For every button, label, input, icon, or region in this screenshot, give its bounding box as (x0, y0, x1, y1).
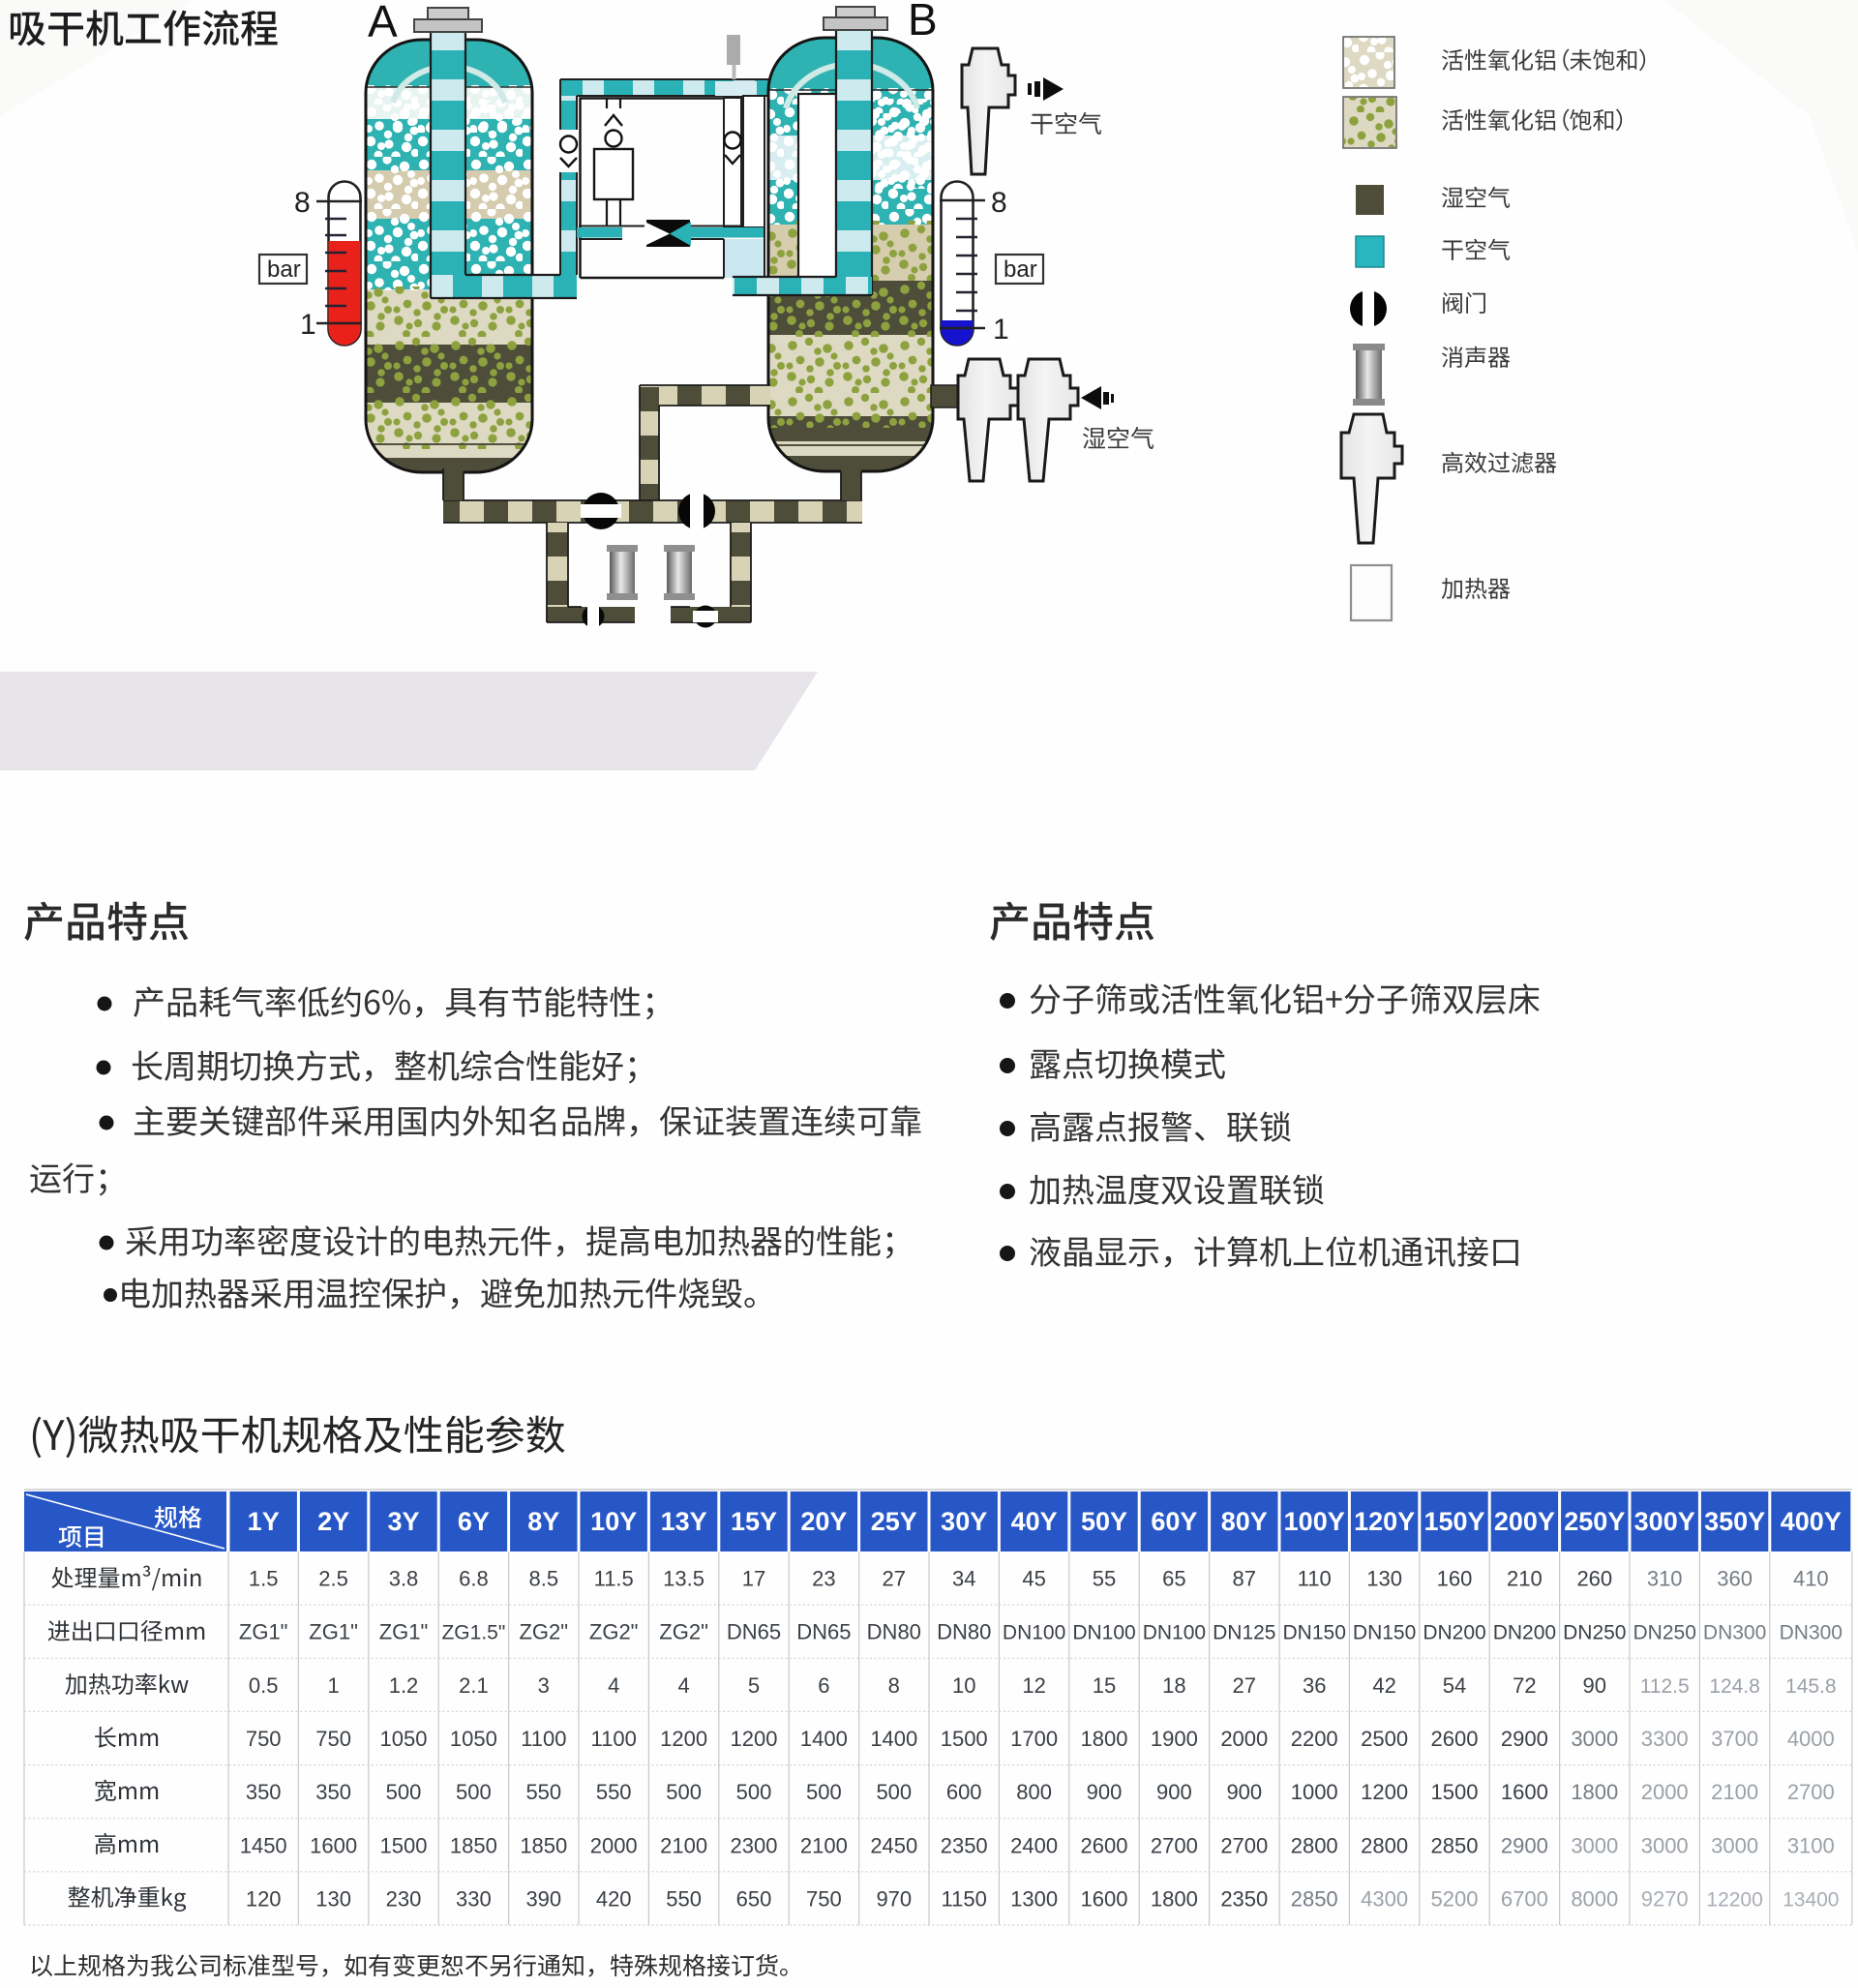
svg-text:2900: 2900 (1501, 1833, 1548, 1857)
svg-text:1600: 1600 (1501, 1780, 1548, 1804)
svg-text:300Y: 300Y (1634, 1507, 1695, 1536)
svg-text:2700: 2700 (1151, 1833, 1198, 1857)
svg-text:1050: 1050 (380, 1727, 428, 1751)
svg-text:10Y: 10Y (590, 1507, 637, 1536)
svg-text:36: 36 (1303, 1673, 1326, 1698)
svg-text:2850: 2850 (1431, 1833, 1479, 1857)
svg-text:2700: 2700 (1220, 1833, 1268, 1857)
svg-text:8000: 8000 (1571, 1886, 1618, 1911)
svg-text:DN250: DN250 (1563, 1622, 1626, 1644)
svg-text:1400: 1400 (800, 1727, 848, 1751)
svg-text:60Y: 60Y (1151, 1507, 1197, 1536)
svg-text:1600: 1600 (1081, 1886, 1128, 1911)
svg-text:1400: 1400 (870, 1727, 917, 1751)
svg-text:1500: 1500 (1431, 1780, 1479, 1804)
svg-text:1: 1 (993, 314, 1009, 346)
svg-text:2850: 2850 (1291, 1886, 1338, 1911)
svg-text:2100: 2100 (660, 1833, 707, 1857)
svg-text:1: 1 (300, 309, 316, 341)
svg-text:360: 360 (1717, 1567, 1753, 1591)
svg-text:2400: 2400 (1010, 1833, 1058, 1857)
svg-text:400Y: 400Y (1781, 1507, 1842, 1536)
svg-text:124.8: 124.8 (1709, 1675, 1760, 1698)
svg-text:2000: 2000 (1220, 1727, 1268, 1751)
svg-text:420: 420 (596, 1886, 632, 1911)
svg-text:6.8: 6.8 (459, 1567, 489, 1591)
svg-text:DN100: DN100 (1143, 1622, 1206, 1644)
svg-text:DN125: DN125 (1213, 1622, 1275, 1644)
svg-text:18: 18 (1162, 1673, 1185, 1698)
svg-text:DN80: DN80 (937, 1620, 991, 1644)
svg-text:130: 130 (315, 1886, 351, 1911)
svg-text:3: 3 (538, 1673, 550, 1698)
svg-text:2800: 2800 (1291, 1833, 1338, 1857)
svg-text:12200: 12200 (1706, 1888, 1762, 1911)
svg-text:DN200: DN200 (1423, 1622, 1485, 1644)
svg-text:10: 10 (952, 1673, 975, 1698)
svg-text:330: 330 (456, 1886, 492, 1911)
svg-text:2300: 2300 (731, 1833, 778, 1857)
svg-text:ZG1": ZG1" (309, 1620, 358, 1644)
svg-text:390: 390 (525, 1886, 561, 1911)
svg-text:54: 54 (1443, 1673, 1466, 1698)
svg-text:2100: 2100 (1711, 1780, 1758, 1804)
svg-text:800: 800 (1016, 1780, 1052, 1804)
svg-text:2600: 2600 (1431, 1727, 1479, 1751)
svg-text:1500: 1500 (941, 1727, 988, 1751)
svg-text:DN80: DN80 (867, 1620, 921, 1644)
svg-text:DN65: DN65 (727, 1620, 781, 1644)
svg-text:DN100: DN100 (1003, 1622, 1065, 1644)
svg-text:970: 970 (876, 1886, 912, 1911)
svg-text:bar: bar (1004, 256, 1037, 283)
svg-text:110: 110 (1298, 1567, 1332, 1591)
svg-text:150Y: 150Y (1423, 1507, 1484, 1536)
svg-text:23: 23 (812, 1567, 835, 1591)
svg-text:145.8: 145.8 (1785, 1675, 1837, 1698)
svg-text:160: 160 (1437, 1567, 1473, 1591)
svg-text:1200: 1200 (660, 1727, 707, 1751)
svg-text:350Y: 350Y (1704, 1507, 1765, 1536)
svg-text:750: 750 (315, 1727, 351, 1751)
svg-text:ZG1.5": ZG1.5" (441, 1622, 505, 1644)
svg-text:2500: 2500 (1361, 1727, 1408, 1751)
svg-text:500: 500 (876, 1780, 912, 1804)
svg-text:30Y: 30Y (941, 1507, 987, 1536)
svg-text:2900: 2900 (1501, 1727, 1548, 1751)
svg-text:20Y: 20Y (800, 1507, 847, 1536)
svg-text:500: 500 (386, 1780, 422, 1804)
svg-text:15: 15 (1093, 1673, 1116, 1698)
svg-text:3100: 3100 (1787, 1833, 1835, 1857)
svg-text:500: 500 (666, 1780, 702, 1804)
svg-text:1800: 1800 (1151, 1886, 1198, 1911)
svg-text:900: 900 (1087, 1780, 1123, 1804)
svg-text:750: 750 (806, 1886, 842, 1911)
svg-text:6: 6 (818, 1673, 829, 1698)
svg-text:B: B (908, 0, 938, 45)
svg-text:4000: 4000 (1787, 1727, 1835, 1751)
svg-text:350: 350 (315, 1780, 351, 1804)
svg-text:27: 27 (883, 1567, 906, 1591)
svg-text:1600: 1600 (310, 1833, 357, 1857)
svg-text:2350: 2350 (1220, 1886, 1268, 1911)
svg-text:4300: 4300 (1361, 1886, 1408, 1911)
svg-text:2600: 2600 (1081, 1833, 1128, 1857)
svg-text:34: 34 (952, 1567, 975, 1591)
svg-text:12: 12 (1022, 1673, 1045, 1698)
svg-text:9270: 9270 (1641, 1886, 1689, 1911)
svg-text:2000: 2000 (590, 1833, 638, 1857)
svg-text:900: 900 (1226, 1780, 1262, 1804)
svg-text:80Y: 80Y (1221, 1507, 1268, 1536)
svg-text:1.5: 1.5 (249, 1567, 279, 1591)
svg-text:2800: 2800 (1361, 1833, 1408, 1857)
svg-text:2100: 2100 (800, 1833, 848, 1857)
svg-text:6Y: 6Y (458, 1507, 490, 1536)
svg-text:DN300: DN300 (1703, 1622, 1766, 1644)
svg-text:ZG2": ZG2" (659, 1620, 708, 1644)
svg-text:1100: 1100 (521, 1727, 566, 1751)
svg-text:1850: 1850 (520, 1833, 567, 1857)
svg-text:1500: 1500 (380, 1833, 428, 1857)
svg-text:17: 17 (742, 1567, 765, 1591)
svg-text:100Y: 100Y (1284, 1507, 1345, 1536)
svg-text:DN100: DN100 (1072, 1622, 1135, 1644)
svg-text:600: 600 (946, 1780, 982, 1804)
svg-text:3000: 3000 (1571, 1727, 1618, 1751)
svg-text:50Y: 50Y (1081, 1507, 1127, 1536)
svg-text:120Y: 120Y (1354, 1507, 1415, 1536)
svg-text:2450: 2450 (870, 1833, 917, 1857)
svg-text:3000: 3000 (1571, 1833, 1618, 1857)
svg-text:5: 5 (748, 1673, 760, 1698)
svg-text:27: 27 (1233, 1673, 1256, 1698)
svg-text:ZG1": ZG1" (239, 1620, 288, 1644)
svg-text:55: 55 (1093, 1567, 1116, 1591)
svg-text:13Y: 13Y (661, 1507, 707, 1536)
svg-text:500: 500 (456, 1780, 492, 1804)
svg-text:13400: 13400 (1783, 1888, 1839, 1911)
svg-text:2Y: 2Y (317, 1507, 349, 1536)
svg-text:ZG2": ZG2" (589, 1620, 639, 1644)
svg-text:3300: 3300 (1641, 1727, 1689, 1751)
svg-text:2.1: 2.1 (459, 1673, 489, 1698)
svg-text:3Y: 3Y (387, 1507, 419, 1536)
svg-text:250Y: 250Y (1564, 1507, 1625, 1536)
svg-text:90: 90 (1583, 1673, 1606, 1698)
svg-text:8Y: 8Y (527, 1507, 559, 1536)
svg-text:ZG1": ZG1" (379, 1620, 429, 1644)
svg-text:DN65: DN65 (796, 1620, 851, 1644)
svg-text:120: 120 (246, 1886, 282, 1911)
svg-text:1150: 1150 (942, 1886, 987, 1911)
svg-text:550: 550 (525, 1780, 561, 1804)
svg-text:210: 210 (1507, 1567, 1543, 1591)
svg-text:5200: 5200 (1431, 1886, 1479, 1911)
svg-text:200Y: 200Y (1494, 1507, 1555, 1536)
svg-text:DN200: DN200 (1493, 1622, 1556, 1644)
svg-text:42: 42 (1372, 1673, 1395, 1698)
svg-text:310: 310 (1647, 1567, 1683, 1591)
svg-text:2.5: 2.5 (318, 1567, 348, 1591)
svg-text:15Y: 15Y (731, 1507, 777, 1536)
svg-text:1800: 1800 (1571, 1780, 1618, 1804)
svg-text:DN300: DN300 (1780, 1622, 1843, 1644)
svg-text:1000: 1000 (1291, 1780, 1338, 1804)
svg-text:2000: 2000 (1641, 1780, 1689, 1804)
svg-text:350: 350 (246, 1780, 282, 1804)
svg-text:410: 410 (1793, 1567, 1829, 1591)
svg-text:3000: 3000 (1711, 1833, 1758, 1857)
svg-text:2200: 2200 (1291, 1727, 1338, 1751)
svg-text:8.5: 8.5 (529, 1567, 559, 1591)
svg-text:DN150: DN150 (1283, 1622, 1346, 1644)
svg-text:260: 260 (1576, 1567, 1612, 1591)
svg-text:A: A (368, 0, 398, 46)
svg-text:8: 8 (991, 187, 1007, 219)
svg-text:500: 500 (736, 1780, 772, 1804)
svg-text:1450: 1450 (240, 1833, 287, 1857)
svg-text:1800: 1800 (1081, 1727, 1128, 1751)
svg-text:11.5: 11.5 (594, 1567, 634, 1591)
svg-text:1700: 1700 (1010, 1727, 1058, 1751)
svg-text:1300: 1300 (1010, 1886, 1058, 1911)
svg-text:750: 750 (246, 1727, 282, 1751)
svg-text:1850: 1850 (450, 1833, 497, 1857)
svg-text:2350: 2350 (941, 1833, 988, 1857)
svg-text:1050: 1050 (450, 1727, 497, 1751)
svg-text:3700: 3700 (1711, 1727, 1758, 1751)
svg-text:1200: 1200 (731, 1727, 778, 1751)
svg-text:1Y: 1Y (248, 1507, 280, 1536)
svg-text:1100: 1100 (591, 1727, 637, 1751)
svg-text:4: 4 (608, 1673, 619, 1698)
svg-text:2700: 2700 (1787, 1780, 1835, 1804)
svg-text:650: 650 (736, 1886, 772, 1911)
svg-text:1200: 1200 (1361, 1780, 1408, 1804)
svg-text:40Y: 40Y (1011, 1507, 1058, 1536)
svg-text:130: 130 (1366, 1567, 1402, 1591)
svg-text:500: 500 (806, 1780, 842, 1804)
svg-text:DN250: DN250 (1633, 1622, 1696, 1644)
svg-text:230: 230 (386, 1886, 422, 1911)
svg-text:65: 65 (1162, 1567, 1185, 1591)
svg-text:4: 4 (677, 1673, 689, 1698)
svg-text:13.5: 13.5 (663, 1567, 704, 1591)
svg-text:8: 8 (294, 187, 311, 219)
svg-text:900: 900 (1156, 1780, 1192, 1804)
svg-text:3000: 3000 (1641, 1833, 1689, 1857)
svg-text:112.5: 112.5 (1640, 1675, 1690, 1698)
svg-text:45: 45 (1022, 1567, 1045, 1591)
svg-text:ZG2": ZG2" (519, 1620, 568, 1644)
svg-text:550: 550 (666, 1886, 702, 1911)
svg-text:1.2: 1.2 (389, 1673, 419, 1698)
svg-text:1: 1 (327, 1673, 339, 1698)
svg-text:6700: 6700 (1501, 1886, 1548, 1911)
svg-text:1900: 1900 (1151, 1727, 1198, 1751)
svg-text:72: 72 (1513, 1673, 1536, 1698)
svg-text:8: 8 (888, 1673, 900, 1698)
svg-text:3.8: 3.8 (389, 1567, 419, 1591)
svg-text:550: 550 (596, 1780, 632, 1804)
svg-text:25Y: 25Y (871, 1507, 917, 1536)
svg-text:DN150: DN150 (1353, 1622, 1416, 1644)
svg-text:0.5: 0.5 (249, 1673, 279, 1698)
svg-text:bar: bar (267, 256, 301, 283)
svg-text:87: 87 (1233, 1567, 1256, 1591)
